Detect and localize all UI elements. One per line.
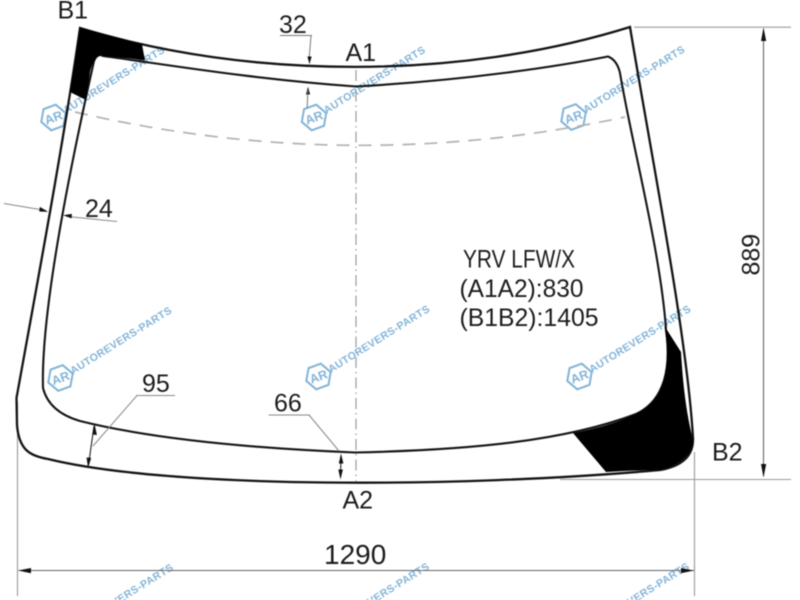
svg-text:889: 889 xyxy=(738,234,766,276)
svg-text:(B1B2):1405: (B1B2):1405 xyxy=(460,304,599,332)
svg-text:95: 95 xyxy=(142,370,170,398)
svg-text:32: 32 xyxy=(279,11,307,39)
svg-text:B2: B2 xyxy=(712,439,743,467)
svg-text:A2: A2 xyxy=(343,487,374,515)
svg-text:(A1A2):830: (A1A2):830 xyxy=(460,275,584,303)
svg-text:YRV LFW/X: YRV LFW/X xyxy=(463,246,575,274)
svg-text:1290: 1290 xyxy=(324,539,386,570)
svg-text:B1: B1 xyxy=(58,0,89,25)
svg-text:A1: A1 xyxy=(346,39,377,67)
svg-text:66: 66 xyxy=(274,390,302,418)
svg-text:24: 24 xyxy=(85,195,113,223)
